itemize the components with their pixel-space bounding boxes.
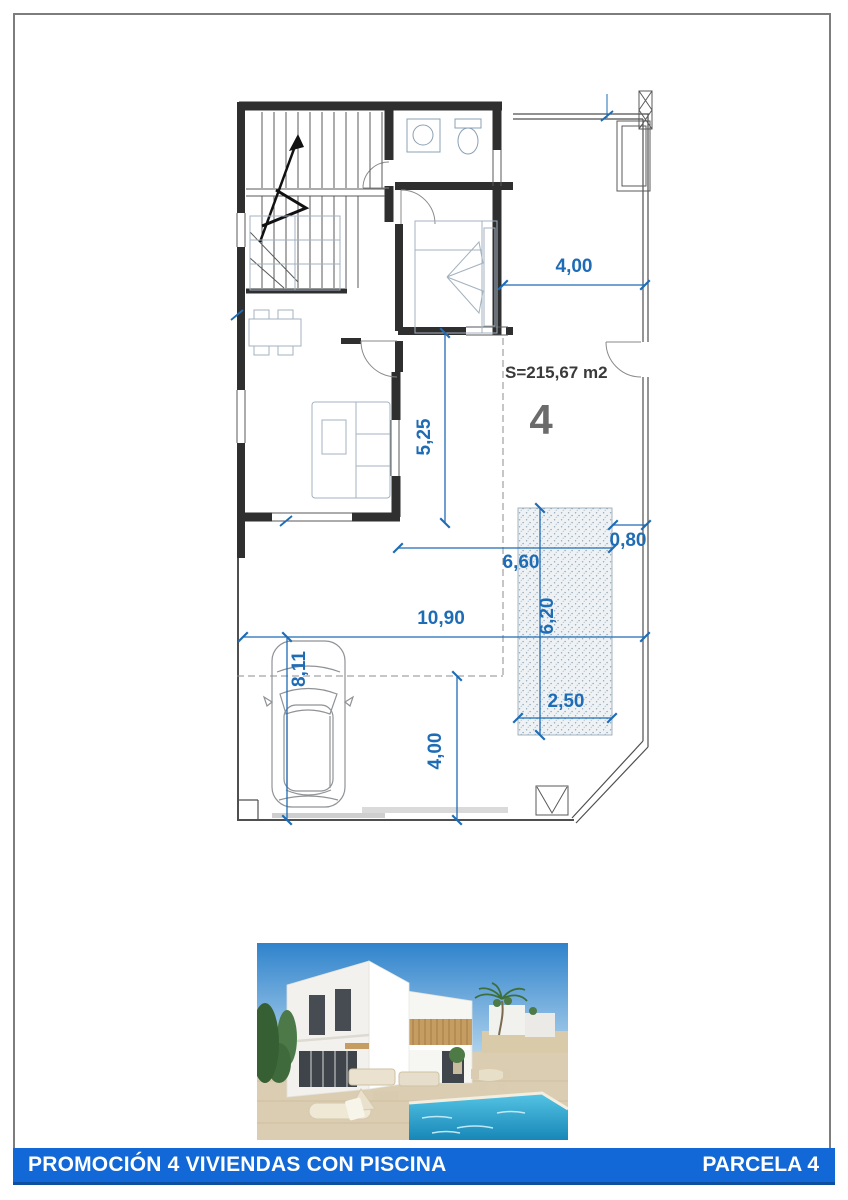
villa-photo — [257, 943, 568, 1140]
toilet-icon — [455, 119, 481, 128]
windows — [237, 150, 508, 521]
floor-plan: 4,00 5,25 0,80 6,60 6,20 2,50 10,90 8,11… — [200, 75, 670, 845]
bed-icon — [415, 221, 497, 333]
footer-title: PROMOCIÓN 4 VIVIENDAS CON PISCINA — [28, 1153, 447, 1177]
kitchen-counter — [250, 216, 340, 290]
footer-bar: PROMOCIÓN 4 VIVIENDAS CON PISCINA PARCEL… — [13, 1148, 835, 1185]
dimension-label-terrace-width: 6,60 — [503, 552, 540, 573]
planter-box — [617, 121, 650, 191]
sofa-icon — [312, 402, 390, 498]
area-label: S=215,67 m2 — [505, 363, 608, 382]
v-marked-box — [536, 786, 568, 815]
dining-table — [249, 310, 301, 355]
dimension-label-pool-side-offset: 0,80 — [610, 530, 647, 551]
dimension-label-driveway-length: 8,11 — [289, 651, 310, 687]
house-walls — [239, 102, 513, 558]
unit-number: 4 — [529, 396, 553, 443]
sink-icon — [407, 119, 440, 152]
document-page: 4,00 5,25 0,80 6,60 6,20 2,50 10,90 8,11… — [0, 0, 848, 1200]
dimension-label-pool-length: 6,20 — [537, 598, 558, 635]
swimming-pool — [409, 1093, 568, 1140]
dimension-label-pool-width: 2,50 — [548, 691, 585, 712]
dimension-label-driveway-width: 4,00 — [425, 733, 446, 770]
dimension-label-plot-top-width: 4,00 — [556, 256, 593, 277]
footer-parcel-label: PARCELA 4 — [702, 1153, 819, 1177]
dimension-label-living-depth: 5,25 — [414, 418, 435, 455]
bathroom-fixtures — [407, 119, 481, 154]
dimension-label-plot-width: 10,90 — [417, 608, 465, 629]
second-villa — [407, 991, 472, 1083]
